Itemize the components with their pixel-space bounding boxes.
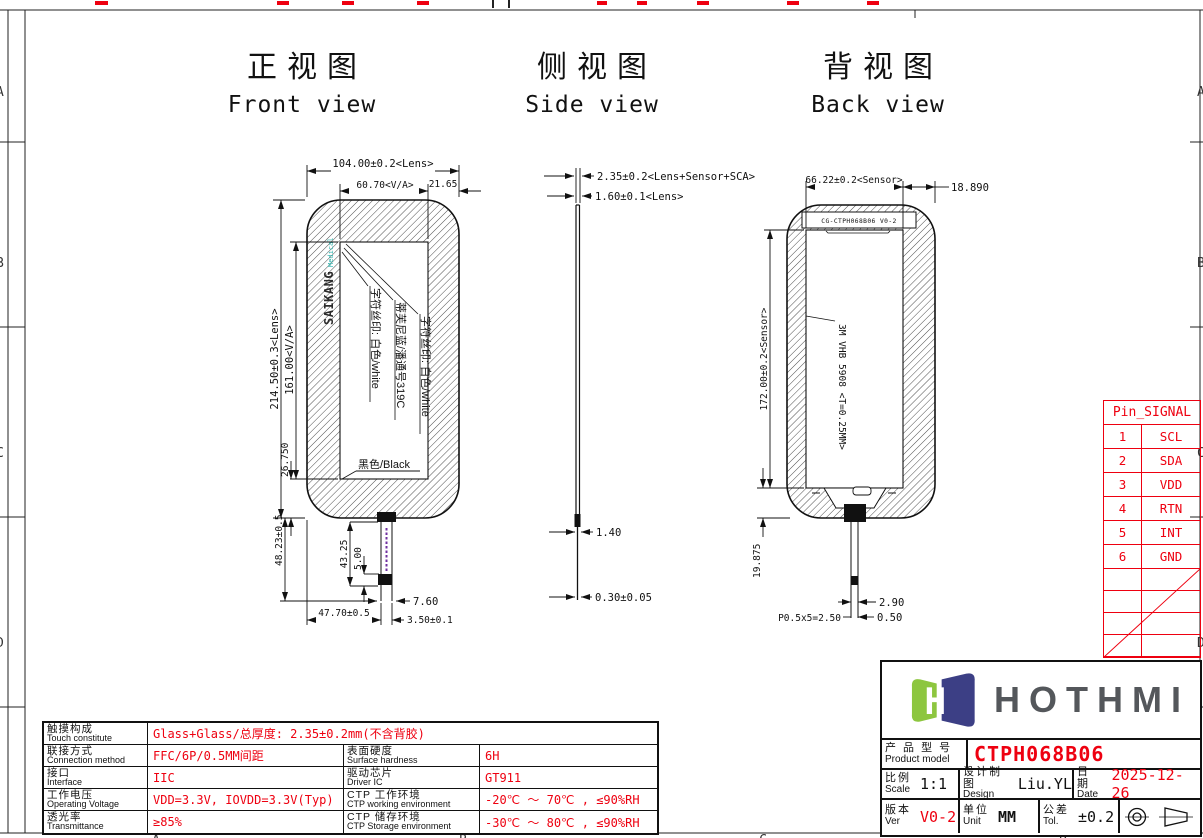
zone-letter: B [1197, 256, 1203, 271]
spec-value2: -20℃ ～ 70℃ , ≤90%RH [480, 789, 657, 810]
zone-letter: D [0, 636, 4, 651]
spec-label2-en: Driver IC [347, 778, 476, 787]
drawing-sheet: A B C D A B C D A B C D SAIKANG Medical [0, 0, 1203, 838]
dim-back-pitch: P0.5x5=2.50 [778, 613, 841, 624]
pin-row: 1 SCL [1104, 425, 1200, 449]
front-view-title: 正视图 Front view [172, 42, 432, 118]
design-label-cn: 设计制图 [963, 767, 1009, 790]
side-dimensions [544, 168, 594, 597]
front-view: SAIKANG Medical 字符丝印: 白色/white 蒂芙尼蓝/潘通号3… [269, 158, 481, 626]
side-view-title-cn: 侧视图 [462, 42, 722, 86]
pin-signal: GND [1142, 545, 1200, 568]
dim-front-va-height: 161.00<V/A> [284, 325, 296, 395]
spec-value2: GT911 [480, 767, 657, 788]
version-unit-tol-row: 版本 Ver V0-2 单位 Unit MM 公差 Tol. ±0.2 [882, 800, 1200, 833]
back-ffc-tail [844, 504, 866, 618]
unit-value: MM [998, 808, 1016, 826]
pin-table-empty-rows [1104, 569, 1200, 657]
pin-table-diagonal [1104, 569, 1200, 657]
side-view: 2.35±0.2<Lens+Sensor+SCA> 1.60±0.1<Lens>… [544, 168, 755, 604]
date-label-cn: 日期 [1077, 767, 1102, 790]
dim-side-fpc: 1.40 [596, 527, 621, 539]
back-view: CG-CTPH068B06 V0-2 3M VHB 5908 <T=0.25MM… [752, 175, 989, 624]
spec-value2: 6H [480, 745, 657, 766]
side-view-title-en: Side view [462, 92, 722, 118]
dim-back-tail-thickness: 0.50 [877, 612, 902, 624]
spec-value2: -30℃ ～ 80℃ , ≤90%RH [480, 811, 657, 833]
spec-row-touch: 触摸构成 Touch constitute Glass+Glass/总厚度: 2… [44, 723, 657, 745]
brand-row: H HOTHMI [882, 662, 1200, 740]
pin-signal: VDD [1142, 473, 1200, 496]
zone-letter: A [1197, 85, 1203, 100]
tape-label: 3M VHB 5908 <T=0.25MM> [836, 324, 847, 450]
spec-value: ≥85% [148, 811, 344, 833]
front-ffc-tail [377, 512, 396, 601]
dim-front-stiffener: 5.00 [353, 547, 364, 570]
pin-number: 5 [1104, 521, 1142, 544]
dim-back-bottom: 19.875 [752, 544, 763, 578]
spec-row-voltage: 工作电压 Operating Voltage VDD=3.3V, IOVDD=3… [44, 789, 657, 811]
pin-signal: SCL [1142, 425, 1200, 448]
back-view-title: 背视图 Back view [748, 42, 1008, 118]
spec-row-transmittance: 透光率 Transmittance ≥85% CTP 储存环境 CTP Stor… [44, 811, 657, 833]
pin-row: 5 INT [1104, 521, 1200, 545]
spec-label2-en: CTP Storage environment [347, 822, 476, 831]
pin-table-title: Pin_SIGNAL [1104, 401, 1200, 425]
version-value: V0-2 [920, 808, 956, 826]
spec-value: VDD=3.3V, IOVDD=3.3V(Typ) [148, 789, 344, 810]
dim-back-tail-width: 2.90 [879, 597, 904, 609]
zone-letter: C [0, 446, 4, 461]
product-model-value: CTPH068B06 [974, 742, 1104, 766]
scale-label-cn: 比例 [885, 773, 911, 785]
pin-signal: INT [1142, 521, 1200, 544]
back-marking-text: CG-CTPH068B06 V0-2 [821, 218, 896, 225]
dim-front-height: 214.50±0.3<Lens> [269, 308, 281, 409]
pin-number: 1 [1104, 425, 1142, 448]
pin-signal-table: Pin_SIGNAL 1 SCL 2 SDA 3 VDD 4 RTN 5 INT… [1103, 400, 1201, 658]
pin-row: 3 VDD [1104, 473, 1200, 497]
dim-front-tail-length: 43.25 [339, 540, 350, 569]
spec-row-connection: 联接方式 Connection method FFC/6P/0.5MM间距 表面… [44, 745, 657, 767]
dim-front-tail-total: 48.23±0.5 [274, 515, 285, 566]
version-label-en: Ver [885, 817, 911, 828]
cropped-revision-marks [95, 0, 879, 8]
side-view-title: 侧视图 Side view [462, 42, 722, 118]
pin-number: 4 [1104, 497, 1142, 520]
spec-label-en: Operating Voltage [47, 800, 144, 809]
pin-row: 6 GND [1104, 545, 1200, 569]
tol-value: ±0.2 [1078, 808, 1114, 826]
spec-row-interface: 接口 Interface IIC 驱动芯片 Driver IC GT911 [44, 767, 657, 789]
front-view-title-en: Front view [172, 92, 432, 118]
tol-label-en: Tol. [1043, 817, 1069, 828]
pin-number: 2 [1104, 449, 1142, 472]
product-label-cn: 产 品 型 号 [885, 743, 952, 755]
hothmi-logo-icon: H [894, 667, 986, 733]
spec-value: IIC [148, 767, 344, 788]
silkscreen-label-2: 字符丝印: 白色/white [419, 316, 433, 417]
design-value: Liu.YL [1018, 775, 1072, 793]
brand-name: HOTHMI [994, 679, 1190, 721]
dim-back-sensor-width: 66.22±0.2<Sensor> [805, 175, 903, 186]
spec-label-en: Touch constitute [47, 734, 144, 743]
dim-back-sensor-height: 172.00±0.2<Sensor> [759, 307, 770, 410]
dim-front-corner: 26.750 [280, 442, 291, 477]
pin-signal: RTN [1142, 497, 1200, 520]
spec-label2-en: CTP working environment [347, 800, 476, 809]
dim-back-right: 18.890 [951, 182, 989, 194]
dim-front-right-margin: 21.65 [429, 179, 458, 190]
spec-value: FFC/6P/0.5MM间距 [148, 745, 344, 766]
third-angle-projection-icon [1123, 804, 1197, 830]
front-view-title-cn: 正视图 [172, 42, 432, 86]
zone-letter: A [0, 85, 4, 100]
dim-side-total: 2.35±0.2<Lens+Sensor+SCA> [597, 171, 755, 183]
unit-label-en: Unit [963, 817, 989, 828]
tiffany-color-label: 蒂芙尼蓝/潘通号319C [394, 302, 408, 408]
spec-label-en: Transmittance [47, 822, 144, 831]
dim-front-tail-width: 7.60 [413, 596, 438, 608]
saikang-logo-text: SAIKANG [322, 271, 336, 325]
pin-row: 4 RTN [1104, 497, 1200, 521]
pin-number: 6 [1104, 545, 1142, 568]
dim-side-tail: 0.30±0.05 [595, 592, 652, 604]
back-view-title-cn: 背视图 [748, 42, 1008, 86]
black-color-label: 黑色/Black [358, 457, 410, 471]
spec-value: Glass+Glass/总厚度: 2.35±0.2mm(不含背胶) [148, 723, 657, 744]
dim-front-va-width: 60.70<V/A> [356, 180, 413, 191]
date-value: 2025-12-26 [1111, 766, 1200, 802]
pin-row: 2 SDA [1104, 449, 1200, 473]
spec-label-en: Interface [47, 778, 144, 787]
pin-number: 3 [1104, 473, 1142, 496]
dim-side-lens: 1.60±0.1<Lens> [595, 191, 684, 203]
spec-table: 触摸构成 Touch constitute Glass+Glass/总厚度: 2… [42, 721, 659, 835]
back-view-title-en: Back view [748, 92, 1008, 118]
spec-label-en: Connection method [47, 756, 144, 765]
title-block: H HOTHMI 产 品 型 号 Product model CTPH068B0… [880, 660, 1202, 837]
product-label-en: Product model [885, 755, 952, 766]
dim-front-tail-tol: 3.50±0.1 [407, 615, 453, 626]
scale-design-date-row: 比例 Scale 1:1 设计制图 Design Liu.YL 日期 Date … [882, 770, 1200, 800]
silkscreen-label-1: 字符丝印: 白色/white [369, 288, 383, 389]
spec-label2-en: Surface hardness [347, 756, 476, 765]
scale-value: 1:1 [920, 775, 947, 793]
scale-label-en: Scale [885, 785, 911, 796]
zone-letter: C [759, 833, 767, 838]
pin-signal: SDA [1142, 449, 1200, 472]
dim-front-width: 104.00±0.2<Lens> [332, 158, 433, 170]
svg-text:H: H [924, 680, 946, 723]
zone-letter: B [0, 256, 4, 271]
dim-front-tail-offset: 47.70±0.5 [318, 608, 369, 619]
